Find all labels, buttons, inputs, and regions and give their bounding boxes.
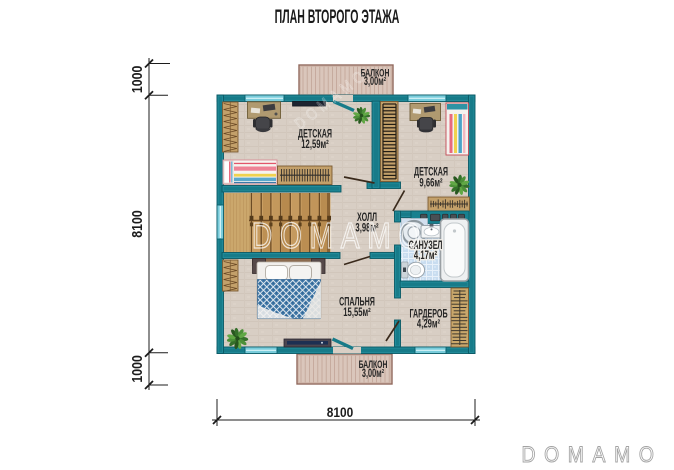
svg-text:4,29м²: 4,29м² <box>417 318 441 331</box>
svg-text:1000: 1000 <box>129 355 145 382</box>
svg-text:9,66м²: 9,66м² <box>419 177 443 190</box>
svg-text:12,59м²: 12,59м² <box>301 138 329 151</box>
svg-text:1000: 1000 <box>129 66 145 93</box>
svg-text:3,00м²: 3,00м² <box>362 367 385 380</box>
svg-text:8100: 8100 <box>129 210 145 237</box>
svg-text:15,55м²: 15,55м² <box>343 307 371 320</box>
svg-text:8100: 8100 <box>327 404 353 420</box>
svg-text:DOMAMO: DOMAMO <box>252 216 428 256</box>
svg-text:DOMAMO: DOMAMO <box>521 443 662 467</box>
